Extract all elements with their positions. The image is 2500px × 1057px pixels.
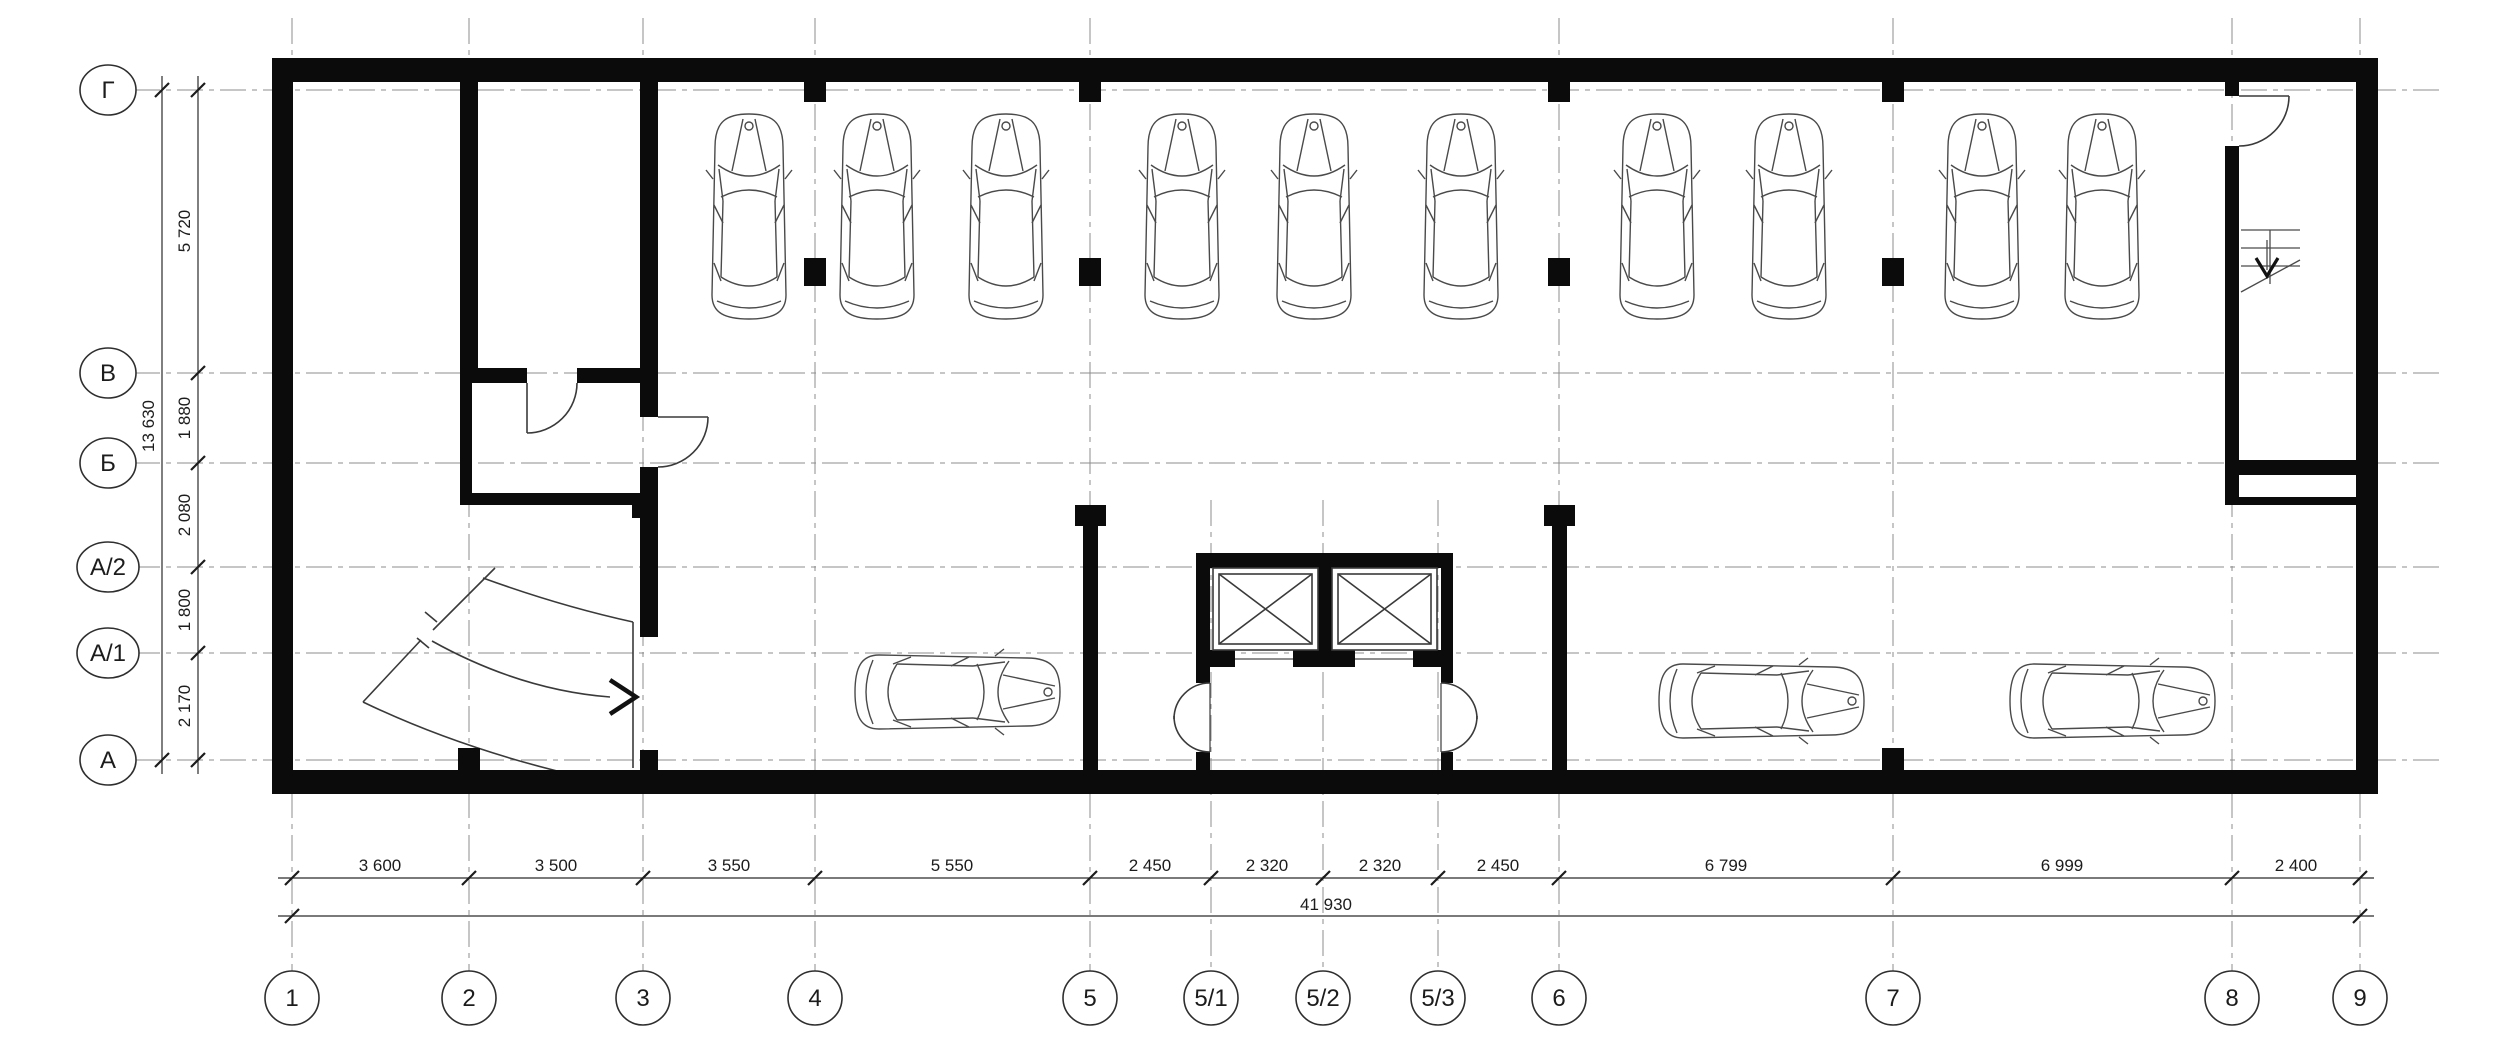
elevator-shaft-left — [1213, 568, 1318, 650]
dim-label: 2 320 — [1246, 856, 1289, 875]
door-swing-arc — [1441, 683, 1477, 719]
column-grid6-mid — [1548, 258, 1570, 286]
axis-label: 5/1 — [1194, 985, 1227, 1012]
wall-stub-grid6 — [1552, 505, 1567, 770]
dim-label: 2 170 — [175, 685, 194, 728]
column-grid7-mid — [1882, 258, 1904, 286]
dim-label: 5 720 — [175, 210, 194, 253]
lobby-wall-right-bottom — [1441, 752, 1453, 770]
elevator-shaft-x-icon — [1219, 574, 1312, 644]
elevator-wall-bottom-left — [1196, 650, 1235, 667]
dim-label: 1 880 — [175, 397, 194, 440]
ramp-edge-line — [363, 640, 421, 702]
axis-label: Б — [100, 450, 116, 477]
exterior-wall-right — [2356, 58, 2378, 794]
dim-label: 2 080 — [175, 494, 194, 537]
lobby-door-jambs — [1210, 683, 1441, 752]
axis-label: 6 — [1552, 985, 1565, 1012]
ramp-direction-arrow — [610, 680, 636, 714]
room-wall-left-thin — [460, 383, 472, 505]
dimensions-bottom: 3 600 3 500 3 550 5 550 2 450 2 320 2 32… — [278, 856, 2374, 923]
doors — [527, 96, 2289, 467]
interior-wall-grid3-upper — [640, 82, 658, 417]
dim-total-label: 13 630 — [139, 400, 158, 452]
lobby-double-door-right — [1441, 683, 1477, 752]
door-swing-arc — [1174, 716, 1210, 752]
exterior-wall-left — [272, 58, 293, 794]
axis-label: 5/2 — [1306, 985, 1339, 1012]
shaft-wall-row-b — [2225, 460, 2357, 475]
column-grid7-bottom — [1882, 748, 1904, 770]
parked-cars — [706, 114, 2215, 744]
room-wall-bottom — [460, 493, 658, 505]
axis-label: А/2 — [90, 554, 126, 581]
axis-label: 4 — [808, 985, 821, 1012]
axis-label: 5 — [1083, 985, 1096, 1012]
column-grid6-top — [1548, 82, 1570, 102]
axis-label: 8 — [2225, 985, 2238, 1012]
column-axis-bubbles: 1 2 3 4 5 5/1 5/2 5/3 6 7 8 9 — [265, 971, 2387, 1025]
axis-label: 9 — [2353, 985, 2366, 1012]
column-grid2-bottom — [458, 748, 480, 770]
lobby-wall-left-bottom — [1196, 752, 1210, 770]
car-icon — [1939, 114, 2025, 319]
door-swing-stair — [2239, 96, 2289, 146]
elevator-wall-bottom-center — [1293, 650, 1355, 667]
car-icon — [855, 649, 1060, 735]
row-axis-bubbles: Г В Б А/2 А/1 А — [77, 65, 139, 785]
interior-wall-grid2 — [460, 82, 478, 383]
car-icon — [834, 114, 920, 319]
car-icon — [1418, 114, 1504, 319]
shaft-wall-lower — [2232, 497, 2357, 505]
axis-label: 7 — [1886, 985, 1899, 1012]
car-icon — [1659, 658, 1864, 744]
floor-plan-drawing: 3 600 3 500 3 550 5 550 2 450 2 320 2 32… — [0, 0, 2500, 1057]
car-icon — [2059, 114, 2145, 319]
door-swing-room1 — [527, 383, 577, 433]
elevator-wall-bottom-right — [1413, 650, 1453, 667]
room-wall-row-v-right — [577, 368, 646, 383]
column-grid5-mid — [1079, 258, 1101, 286]
dim-label: 6 799 — [1705, 856, 1748, 875]
dim-label: 3 550 — [708, 856, 751, 875]
ramp-edge-line — [433, 568, 495, 630]
dim-label: 2 400 — [2275, 856, 2318, 875]
exterior-wall-bottom — [272, 770, 2378, 794]
axis-label: 2 — [462, 985, 475, 1012]
exterior-wall-top — [272, 58, 2378, 82]
wall-stub-grid5 — [1083, 505, 1098, 770]
column-grid4-mid — [804, 258, 826, 286]
door-swing-room2 — [658, 417, 708, 467]
dim-label: 5 550 — [931, 856, 974, 875]
car-icon — [2010, 658, 2215, 744]
column-grid4-top — [804, 82, 826, 102]
dim-label: 2 450 — [1129, 856, 1172, 875]
stairs — [2241, 230, 2300, 292]
axis-label: А — [100, 747, 116, 774]
dim-label: 3 500 — [535, 856, 578, 875]
ramp-outer-arc — [483, 578, 633, 622]
axis-label: В — [100, 360, 116, 387]
dim-label: 1 800 — [175, 589, 194, 632]
door-swing-arc — [1441, 716, 1477, 752]
car-icon — [963, 114, 1049, 319]
car-icon — [1271, 114, 1357, 319]
axis-label: 3 — [636, 985, 649, 1012]
car-icon — [1139, 114, 1225, 319]
axis-label: А/1 — [90, 640, 126, 667]
axis-label: Г — [102, 77, 115, 104]
wall-stub-grid3 — [640, 505, 658, 637]
dim-label: 3 600 — [359, 856, 402, 875]
stair-enclosure-wall — [2225, 146, 2239, 505]
car-icon — [1746, 114, 1832, 319]
axis-label: 5/3 — [1421, 985, 1454, 1012]
door-swing-arc — [1174, 683, 1210, 719]
dim-total-label: 41 930 — [1300, 895, 1352, 914]
elevator-shaft-x-icon — [1338, 574, 1431, 644]
ramp-center-arc — [432, 641, 610, 697]
stair-door-jamb-top — [2225, 82, 2239, 96]
elevator-core — [1174, 553, 1477, 770]
wall-block-grid3-bottom — [640, 750, 658, 770]
dim-label: 2 450 — [1477, 856, 1520, 875]
floor-plan-page: 3 600 3 500 3 550 5 550 2 450 2 320 2 32… — [0, 0, 2500, 1057]
dim-label: 2 320 — [1359, 856, 1402, 875]
ramp — [363, 568, 636, 771]
car-icon — [706, 114, 792, 319]
dim-label: 6 999 — [2041, 856, 2084, 875]
car-icon — [1614, 114, 1700, 319]
axis-label: 1 — [285, 985, 298, 1012]
elevator-shaft-right — [1332, 568, 1437, 650]
dimensions-left: 5 720 1 880 2 080 1 800 2 170 13 630 — [139, 76, 205, 774]
room-wall-row-v-left — [460, 368, 527, 383]
column-grid7-top — [1882, 82, 1904, 102]
column-grid5-top — [1079, 82, 1101, 102]
lobby-double-door-left — [1174, 683, 1210, 752]
